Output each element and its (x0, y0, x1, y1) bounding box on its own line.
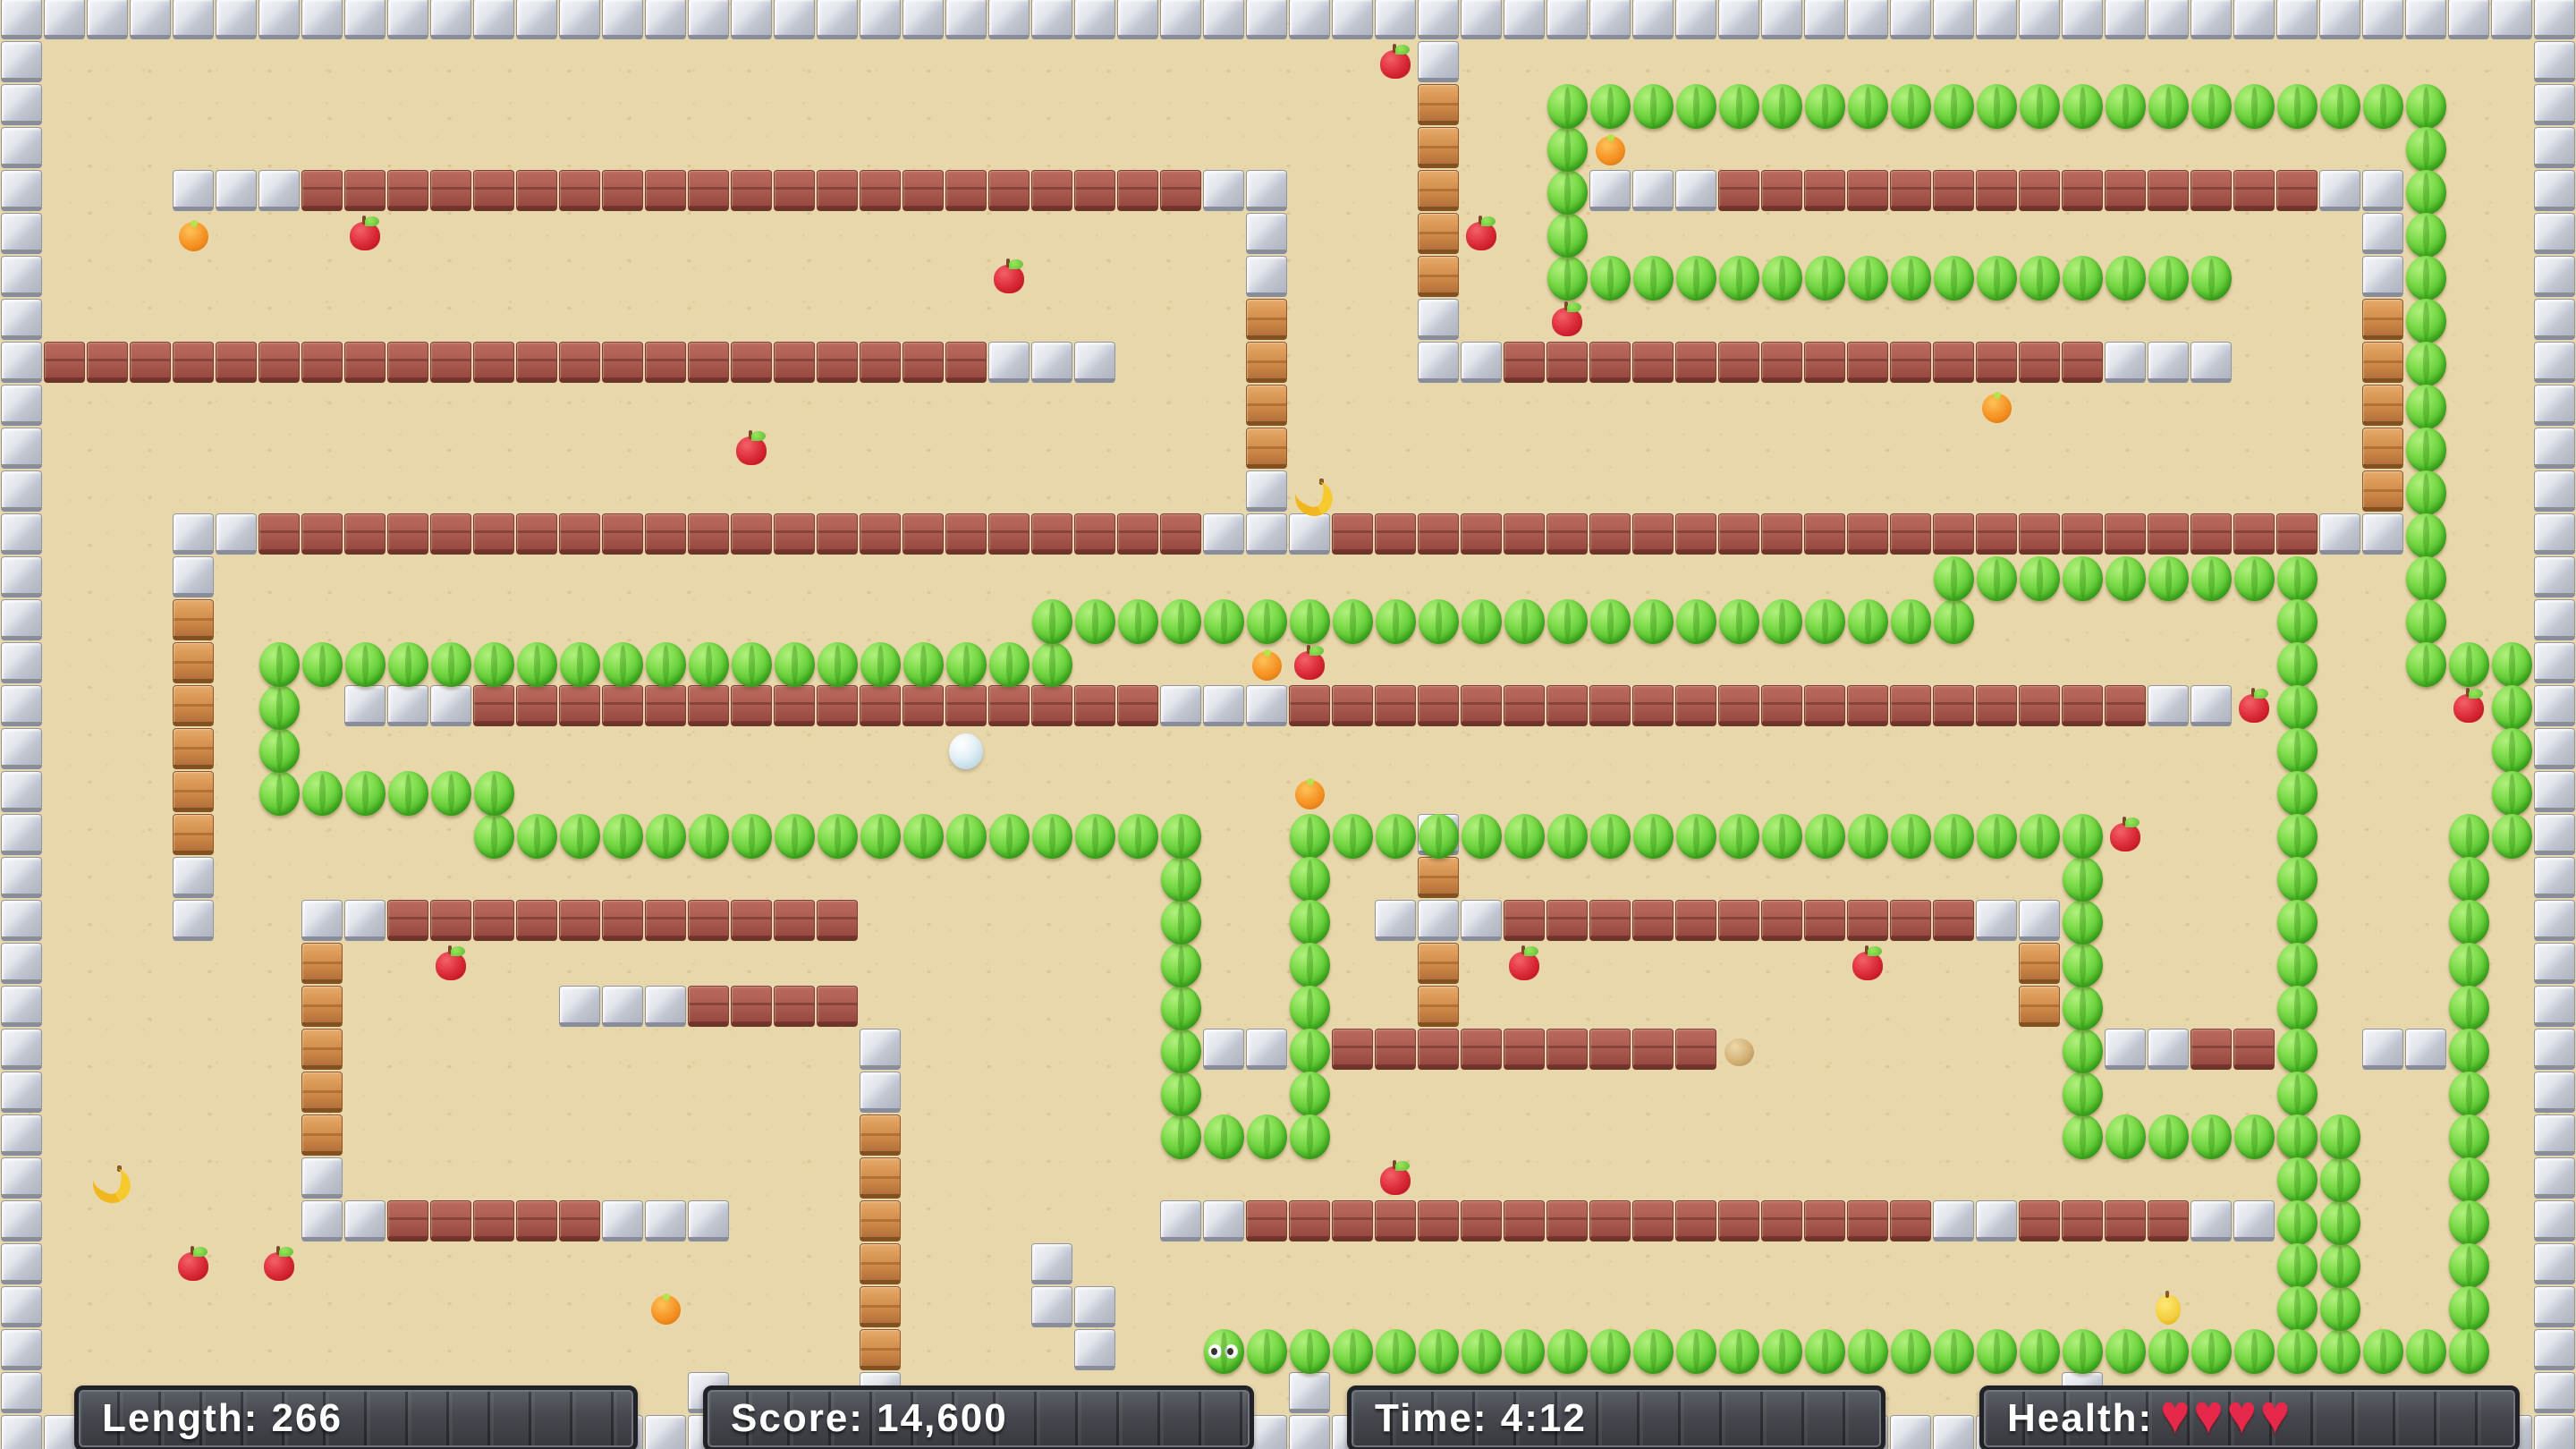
snake-segment (1161, 900, 1201, 945)
wall-tile-brick (430, 900, 471, 941)
wall-tile-brick (1804, 513, 1845, 555)
snake-segment (1848, 814, 1888, 859)
wall-tile-stone (2534, 1329, 2575, 1370)
snake-segment (1290, 1029, 1330, 1073)
game-board[interactable]: Length: 266 Score: 14,600 Time: 4:12 Hea… (0, 0, 2576, 1449)
wall-tile-wood (1418, 213, 1459, 254)
wall-tile-brick (516, 685, 557, 726)
snake-segment (603, 814, 643, 859)
snake-segment (732, 814, 772, 859)
wall-tile-brick (1761, 900, 1802, 941)
wall-tile-stone (1890, 0, 1931, 39)
snake-segment (1762, 256, 1802, 301)
wall-tile-stone (2534, 385, 2575, 426)
wall-tile-stone (945, 0, 987, 39)
snake-segment (2063, 1072, 2103, 1116)
snake-segment (1462, 814, 1502, 859)
wall-tile-brick (1289, 685, 1330, 726)
wall-tile-brick (344, 513, 386, 555)
wall-tile-brick (1847, 685, 1888, 726)
snake-segment (2063, 814, 2103, 859)
wall-tile-brick (1461, 685, 1502, 726)
wall-tile-stone (173, 0, 214, 39)
apple-item (1466, 222, 1496, 250)
snake-segment (2320, 1329, 2360, 1374)
snake-segment (2492, 771, 2532, 816)
wall-tile-brick (688, 342, 729, 383)
wall-tile-stone (860, 0, 901, 39)
wall-tile-brick (731, 986, 772, 1027)
orange-item (1596, 136, 1625, 165)
wall-tile-stone (1, 84, 42, 125)
snake-segment (2320, 84, 2360, 129)
wall-tile-wood (1418, 857, 1459, 898)
wall-tile-stone (1504, 0, 1545, 39)
wall-tile-wood (860, 1286, 901, 1327)
snake-segment (2106, 1329, 2146, 1374)
wall-tile-brick (2233, 1029, 2275, 1070)
wall-tile-brick (1632, 342, 1674, 383)
snake-segment (1032, 814, 1072, 859)
wall-tile-stone (2534, 814, 2575, 855)
wall-tile-stone (1, 986, 42, 1027)
wall-tile-brick (902, 342, 944, 383)
wall-tile-brick (774, 900, 815, 941)
wall-tile-stone (2534, 1114, 2575, 1156)
wall-tile-brick (1890, 685, 1931, 726)
wall-tile-brick (602, 170, 643, 211)
snake-segment (1118, 599, 1158, 644)
snake-segment (2406, 299, 2446, 343)
snake-segment (946, 814, 987, 859)
snake-segment (1547, 814, 1588, 859)
lemon-item (2156, 1295, 2181, 1325)
wall-tile-brick (817, 170, 858, 211)
wall-tile-brick (344, 342, 386, 383)
apple-item (2239, 694, 2269, 723)
wall-tile-stone (1632, 170, 1674, 211)
wall-tile-wood (860, 1200, 901, 1241)
wall-tile-brick (516, 170, 557, 211)
wall-tile-stone (2319, 513, 2360, 555)
wall-tile-stone (1, 1372, 42, 1413)
snake-segment (2063, 256, 2103, 301)
wall-tile-stone (2062, 0, 2103, 39)
wall-tile-brick (2062, 170, 2103, 211)
wall-tile-stone (1418, 0, 1459, 39)
apple-item (1294, 651, 1325, 680)
wall-tile-stone (301, 900, 343, 941)
snake-segment (2191, 1114, 2232, 1159)
snake-head (1204, 1329, 1244, 1374)
snake-segment (1419, 599, 1459, 644)
wall-tile-stone (1246, 685, 1287, 726)
snake-segment (2406, 1329, 2446, 1374)
wall-tile-brick (387, 900, 428, 941)
wall-tile-brick (173, 342, 214, 383)
snake-segment (431, 771, 471, 816)
wall-tile-brick (1933, 513, 1974, 555)
time-panel: Time: 4:12 (1347, 1385, 1885, 1449)
wall-tile-brick (1632, 685, 1674, 726)
wall-tile-wood (173, 771, 214, 812)
wall-tile-stone (2148, 342, 2189, 383)
wall-tile-brick (1890, 1200, 1931, 1241)
snake-segment (1032, 642, 1072, 687)
length-label: Length: 266 (79, 1396, 343, 1441)
snake-segment (1590, 1329, 1631, 1374)
wall-tile-stone (2534, 1415, 2575, 1449)
wall-tile-brick (1675, 1200, 1716, 1241)
wall-tile-stone (1, 1029, 42, 1070)
wall-tile-wood (2362, 385, 2403, 426)
wall-tile-brick (688, 170, 729, 211)
snake-segment (1290, 1329, 1330, 1374)
wall-tile-stone (2534, 213, 2575, 254)
wall-tile-wood (1418, 943, 1459, 984)
wall-tile-stone (173, 900, 214, 941)
wall-tile-brick (559, 900, 600, 941)
wall-tile-brick (430, 170, 471, 211)
wall-tile-brick (945, 342, 987, 383)
apple-item (1380, 1166, 1411, 1195)
wall-tile-stone (559, 986, 600, 1027)
wall-tile-stone (216, 170, 257, 211)
wall-tile-stone (1, 556, 42, 597)
snake-segment (1419, 1329, 1459, 1374)
snake-segment (1419, 814, 1459, 859)
wall-tile-brick (2190, 513, 2232, 555)
wall-tile-stone (2534, 1286, 2575, 1327)
snake-segment (1161, 814, 1201, 859)
snake-segment (2449, 900, 2489, 945)
bubble-item (949, 733, 983, 769)
snake-segment (2277, 1200, 2318, 1245)
wall-tile-brick (860, 170, 901, 211)
health-panel: Health:♥♥♥♥ (1979, 1385, 2520, 1449)
snake-segment (2406, 213, 2446, 258)
wall-tile-brick (2019, 685, 2060, 726)
wall-tile-stone (130, 0, 171, 39)
wall-tile-brick (1718, 342, 1759, 383)
wall-tile-wood (1418, 986, 1459, 1027)
apple-item (178, 1252, 208, 1281)
snake-segment (732, 642, 772, 687)
wall-tile-brick (1418, 1029, 1459, 1070)
snake-segment (2234, 1329, 2275, 1374)
wall-tile-stone (2105, 1029, 2146, 1070)
snake-segment (2191, 1329, 2232, 1374)
snake-segment (1934, 814, 1974, 859)
wall-tile-stone (1, 256, 42, 297)
apple-item (1852, 952, 1883, 980)
wall-tile-brick (1804, 685, 1845, 726)
wall-tile-stone (1, 385, 42, 426)
snake-segment (1504, 599, 1545, 644)
wall-tile-brick (688, 986, 729, 1027)
snake-segment (1805, 84, 1845, 129)
snake-segment (2277, 1243, 2318, 1288)
wall-tile-brick (1461, 1029, 1502, 1070)
wall-tile-stone (1160, 1200, 1201, 1241)
wall-tile-stone (216, 513, 257, 555)
wall-tile-wood (1246, 299, 1287, 340)
snake-segment (2449, 1243, 2489, 1288)
snake-segment (2406, 642, 2446, 687)
snake-segment (1161, 943, 1201, 987)
snake-segment (2406, 84, 2446, 129)
wall-tile-stone (1, 685, 42, 726)
wall-tile-stone (2534, 1157, 2575, 1199)
wall-tile-brick (1461, 513, 1502, 555)
wall-tile-brick (430, 513, 471, 555)
wall-tile-stone (2105, 0, 2146, 39)
wall-tile-wood (2362, 299, 2403, 340)
snake-segment (1547, 127, 1588, 172)
wall-tile-stone (1160, 0, 1201, 39)
snake-segment (818, 642, 858, 687)
wall-tile-brick (1632, 513, 1674, 555)
wall-tile-brick (1890, 342, 1931, 383)
wall-tile-stone (173, 857, 214, 898)
wall-tile-brick (1761, 1200, 1802, 1241)
wall-tile-stone (2233, 1200, 2275, 1241)
snake-segment (1462, 1329, 1502, 1374)
wall-tile-stone (2534, 470, 2575, 512)
wall-tile-wood (301, 986, 343, 1027)
apple-item (1552, 308, 1582, 336)
snake-segment (2406, 599, 2446, 644)
wall-tile-brick (1589, 1200, 1631, 1241)
snake-segment (1633, 1329, 1674, 1374)
snake-segment (1290, 900, 1330, 945)
snake-segment (2277, 685, 2318, 730)
wall-tile-brick (1375, 513, 1416, 555)
wall-tile-wood (2362, 428, 2403, 469)
wall-tile-brick (602, 513, 643, 555)
wall-tile-stone (1, 299, 42, 340)
wall-tile-brick (387, 170, 428, 211)
wall-tile-stone (1589, 0, 1631, 39)
snake-segment (474, 642, 514, 687)
wall-tile-stone (173, 513, 214, 555)
wall-tile-stone (2405, 1029, 2446, 1070)
wall-tile-brick (774, 685, 815, 726)
wall-tile-stone (602, 0, 643, 39)
wall-tile-stone (817, 0, 858, 39)
snake-segment (1547, 170, 1588, 215)
wall-tile-stone (1332, 0, 1373, 39)
snake-segment (2063, 556, 2103, 601)
orange-item (1982, 394, 2012, 423)
snake-segment (1676, 84, 1716, 129)
wall-tile-brick (2148, 513, 2189, 555)
wall-tile-brick (2276, 170, 2318, 211)
snake-segment (2063, 943, 2103, 987)
wall-tile-brick (1246, 1200, 1287, 1241)
wall-tile-stone (2534, 1072, 2575, 1113)
wall-tile-stone (344, 0, 386, 39)
apple-item (736, 436, 767, 465)
orange-item (1295, 780, 1325, 809)
snake-segment (2020, 1329, 2060, 1374)
wall-tile-stone (2148, 1029, 2189, 1070)
wall-tile-stone (2534, 1029, 2575, 1070)
wall-tile-stone (688, 0, 729, 39)
snake-segment (2063, 900, 2103, 945)
wall-tile-brick (2276, 513, 2318, 555)
wall-tile-brick (602, 342, 643, 383)
snake-segment (2320, 1114, 2360, 1159)
snake-segment (259, 642, 300, 687)
wall-tile-stone (1418, 299, 1459, 340)
snake-segment (1247, 599, 1287, 644)
wall-tile-brick (2019, 513, 2060, 555)
snake-segment (2234, 84, 2275, 129)
snake-segment (1848, 84, 1888, 129)
wall-tile-wood (860, 1157, 901, 1199)
wall-tile-brick (516, 900, 557, 941)
wall-tile-stone (2534, 1372, 2575, 1413)
wall-tile-brick (430, 342, 471, 383)
snake-segment (2406, 428, 2446, 472)
wall-tile-brick (1589, 900, 1631, 941)
wall-tile-brick (1976, 513, 2017, 555)
snake-segment (2191, 556, 2232, 601)
wall-tile-brick (301, 170, 343, 211)
wall-tile-stone (1, 1200, 42, 1241)
wall-tile-brick (559, 1200, 600, 1241)
wall-tile-brick (1332, 1200, 1373, 1241)
wall-tile-brick (2062, 342, 2103, 383)
wall-tile-brick (945, 170, 987, 211)
wall-tile-brick (1976, 170, 2017, 211)
snake-segment (903, 814, 944, 859)
wall-tile-stone (301, 1157, 343, 1199)
wall-tile-stone (1, 470, 42, 512)
snake-segment (2449, 1200, 2489, 1245)
snake-segment (1977, 256, 2017, 301)
snake-segment (2277, 771, 2318, 816)
wall-tile-stone (2534, 857, 2575, 898)
wall-tile-brick (1632, 900, 1674, 941)
snake-segment (517, 642, 557, 687)
wall-tile-stone (1, 1114, 42, 1156)
wall-tile-wood (2019, 943, 2060, 984)
snake-segment (1376, 599, 1416, 644)
snake-segment (2148, 1114, 2189, 1159)
wall-tile-brick (645, 685, 686, 726)
wall-tile-stone (173, 170, 214, 211)
snake-segment (1204, 1114, 1244, 1159)
wall-tile-brick (602, 900, 643, 941)
wall-tile-stone (2491, 0, 2532, 39)
wall-tile-stone (2233, 0, 2275, 39)
wall-tile-stone (2534, 685, 2575, 726)
wall-tile-brick (1418, 1200, 1459, 1241)
wall-tile-stone (2534, 0, 2575, 39)
wall-tile-stone (1031, 1286, 1072, 1327)
wall-tile-stone (1, 1329, 42, 1370)
wall-tile-brick (516, 513, 557, 555)
snake-segment (1977, 1329, 2017, 1374)
wall-tile-brick (2105, 685, 2146, 726)
snake-segment (2277, 1114, 2318, 1159)
wall-tile-stone (2405, 0, 2446, 39)
snake-segment (2277, 900, 2318, 945)
wall-tile-stone (1, 0, 42, 39)
wall-tile-wood (173, 599, 214, 640)
health-hearts: ♥♥♥♥ (2158, 1396, 2292, 1441)
wall-tile-brick (473, 685, 514, 726)
snake-segment (1333, 1329, 1373, 1374)
heart-icon: ♥ (2227, 1394, 2258, 1434)
snake-segment (1719, 1329, 1759, 1374)
wall-tile-stone (2534, 599, 2575, 640)
wall-tile-stone (1289, 0, 1330, 39)
snake-segment (259, 685, 300, 730)
snake-segment (603, 642, 643, 687)
wall-tile-stone (1074, 0, 1115, 39)
wall-tile-brick (1761, 513, 1802, 555)
wall-tile-stone (1418, 900, 1459, 941)
wall-tile-wood (1418, 84, 1459, 125)
wall-tile-brick (2019, 1200, 2060, 1241)
wall-tile-stone (1461, 900, 1502, 941)
snake-segment (1118, 814, 1158, 859)
wall-tile-brick (1074, 513, 1115, 555)
wall-tile-stone (902, 0, 944, 39)
snake-segment (1247, 1114, 1287, 1159)
snake-segment (1762, 1329, 1802, 1374)
snake-segment (1161, 599, 1201, 644)
snake-segment (903, 642, 944, 687)
snake-segment (2277, 84, 2318, 129)
wall-tile-wood (860, 1329, 901, 1370)
wall-tile-wood (173, 814, 214, 855)
snake-segment (2406, 170, 2446, 215)
wall-tile-brick (1847, 513, 1888, 555)
banana-item (1293, 479, 1326, 509)
snake-segment (2320, 1286, 2360, 1331)
snake-segment (2063, 857, 2103, 902)
snake-segment (2277, 986, 2318, 1030)
snake-segment (946, 642, 987, 687)
wall-tile-brick (1589, 342, 1631, 383)
wall-tile-brick (902, 513, 944, 555)
snake-segment (1719, 256, 1759, 301)
snake-segment (1762, 84, 1802, 129)
snake-segment (1547, 256, 1588, 301)
wall-tile-brick (559, 170, 600, 211)
snake-segment (2020, 84, 2060, 129)
wall-tile-brick (817, 986, 858, 1027)
wall-tile-brick (1632, 1200, 1674, 1241)
snake-segment (860, 814, 901, 859)
snake-segment (345, 771, 386, 816)
wall-tile-stone (645, 986, 686, 1027)
wall-tile-wood (1246, 385, 1287, 426)
snake-segment (2449, 814, 2489, 859)
wall-tile-brick (2105, 170, 2146, 211)
wall-tile-brick (1675, 342, 1716, 383)
wall-tile-brick (2233, 170, 2275, 211)
snake-segment (2277, 1029, 2318, 1073)
snake-segment (2106, 84, 2146, 129)
wall-tile-brick (1504, 900, 1545, 941)
snake-segment (1891, 256, 1931, 301)
wall-tile-brick (2148, 1200, 2189, 1241)
